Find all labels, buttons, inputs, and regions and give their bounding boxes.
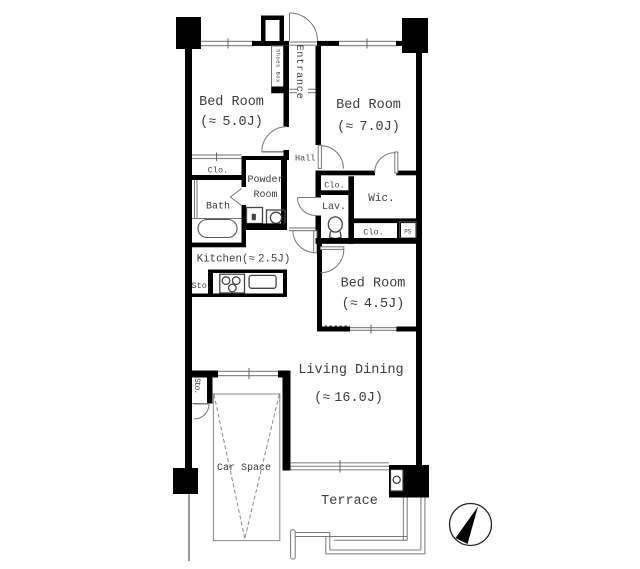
svg-text:(≈5.0J): (≈5.0J) [200,115,263,130]
svg-text:Wic.: Wic. [368,193,394,205]
svg-text:Clo.: Clo. [208,166,228,176]
svg-text:Kitchen(≈2.5J): Kitchen(≈2.5J) [197,254,291,266]
svg-text:PS: PS [404,229,412,236]
svg-text:(≈16.0J): (≈16.0J) [314,391,383,406]
svg-text:Hall: Hall [295,154,315,164]
svg-text:Sto.: Sto. [192,378,201,393]
svg-text:Clo.: Clo. [363,228,383,238]
svg-text:Lav.: Lav. [322,202,346,213]
svg-text:Entrance: Entrance [293,45,304,100]
svg-text:Bed Room: Bed Room [199,95,264,110]
svg-text:(≈7.0J): (≈7.0J) [337,120,400,135]
svg-text:Powder: Powder [247,174,283,186]
svg-text:Bed Room: Bed Room [341,277,406,292]
svg-text:(≈4.5J): (≈4.5J) [342,297,405,312]
svg-text:Terrace: Terrace [321,494,378,509]
svg-text:Bath: Bath [206,201,230,213]
svg-text:Living Dining: Living Dining [298,363,403,378]
svg-text:Shoes Box: Shoes Box [275,49,282,83]
svg-text:Clo.: Clo. [324,181,344,191]
svg-text:Bed Room: Bed Room [336,98,401,113]
svg-text:Room: Room [253,190,277,201]
svg-text:Sto.: Sto. [192,281,212,291]
svg-text:Car Space: Car Space [217,463,271,474]
